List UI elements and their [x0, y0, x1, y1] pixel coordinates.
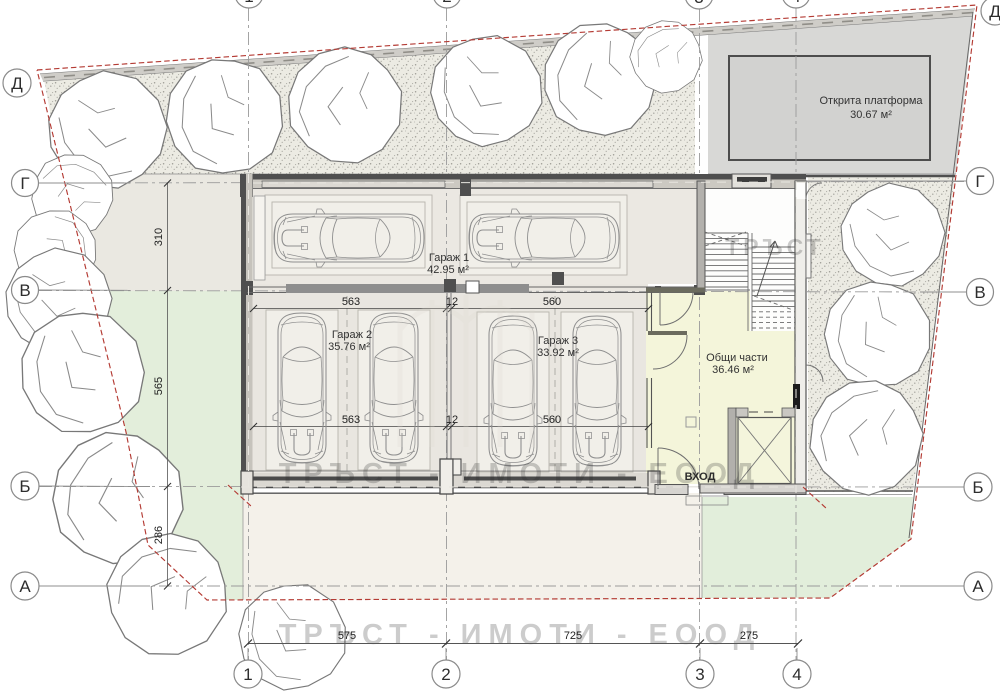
- svg-text:В: В: [19, 281, 30, 300]
- svg-text:Д: Д: [989, 2, 1000, 21]
- svg-text:3: 3: [695, 665, 704, 684]
- svg-text:1: 1: [243, 665, 252, 684]
- svg-text:560: 560: [543, 414, 561, 426]
- svg-text:4: 4: [791, 0, 800, 6]
- svg-text:575: 575: [338, 630, 356, 642]
- svg-text:4: 4: [792, 665, 801, 684]
- svg-text:Г: Г: [20, 174, 29, 193]
- svg-text:ТРЪСТ: ТРЪСТ: [725, 234, 824, 260]
- svg-text:Б: Б: [972, 478, 983, 497]
- svg-text:Открита платформа: Открита платформа: [819, 95, 923, 107]
- svg-text:563: 563: [342, 296, 360, 308]
- svg-text:Б: Б: [19, 477, 30, 496]
- svg-text:Гараж 3: Гараж 3: [538, 335, 578, 347]
- svg-text:В: В: [974, 283, 985, 302]
- svg-text:Д: Д: [11, 74, 23, 93]
- svg-text:563: 563: [342, 414, 360, 426]
- svg-text:1: 1: [244, 0, 253, 6]
- svg-text:30.67 м²: 30.67 м²: [850, 109, 892, 121]
- svg-text:2: 2: [441, 665, 450, 684]
- svg-text:А: А: [19, 577, 31, 596]
- svg-text:35.76 м²: 35.76 м²: [328, 341, 370, 353]
- svg-text:12: 12: [446, 414, 458, 426]
- svg-text:310: 310: [153, 228, 165, 246]
- svg-text:Общи части: Общи части: [706, 352, 768, 364]
- svg-text:565: 565: [153, 377, 165, 395]
- svg-text:725: 725: [564, 630, 582, 642]
- svg-text:36.46 м²: 36.46 м²: [712, 364, 754, 376]
- svg-text:3: 3: [694, 0, 703, 7]
- svg-text:42.95 м²: 42.95 м²: [427, 264, 469, 276]
- svg-text:12: 12: [446, 296, 458, 308]
- svg-text:33.92 м²: 33.92 м²: [537, 347, 579, 359]
- svg-text:Гараж 1: Гараж 1: [429, 252, 469, 264]
- svg-text:А: А: [972, 577, 984, 596]
- svg-text:2: 2: [442, 0, 451, 6]
- svg-text:286: 286: [153, 526, 165, 544]
- svg-text:Гараж 2: Гараж 2: [332, 329, 372, 341]
- svg-text:ВХОД: ВХОД: [685, 471, 716, 483]
- svg-text:560: 560: [543, 296, 561, 308]
- svg-text:Г: Г: [975, 172, 984, 191]
- svg-text:275: 275: [740, 630, 758, 642]
